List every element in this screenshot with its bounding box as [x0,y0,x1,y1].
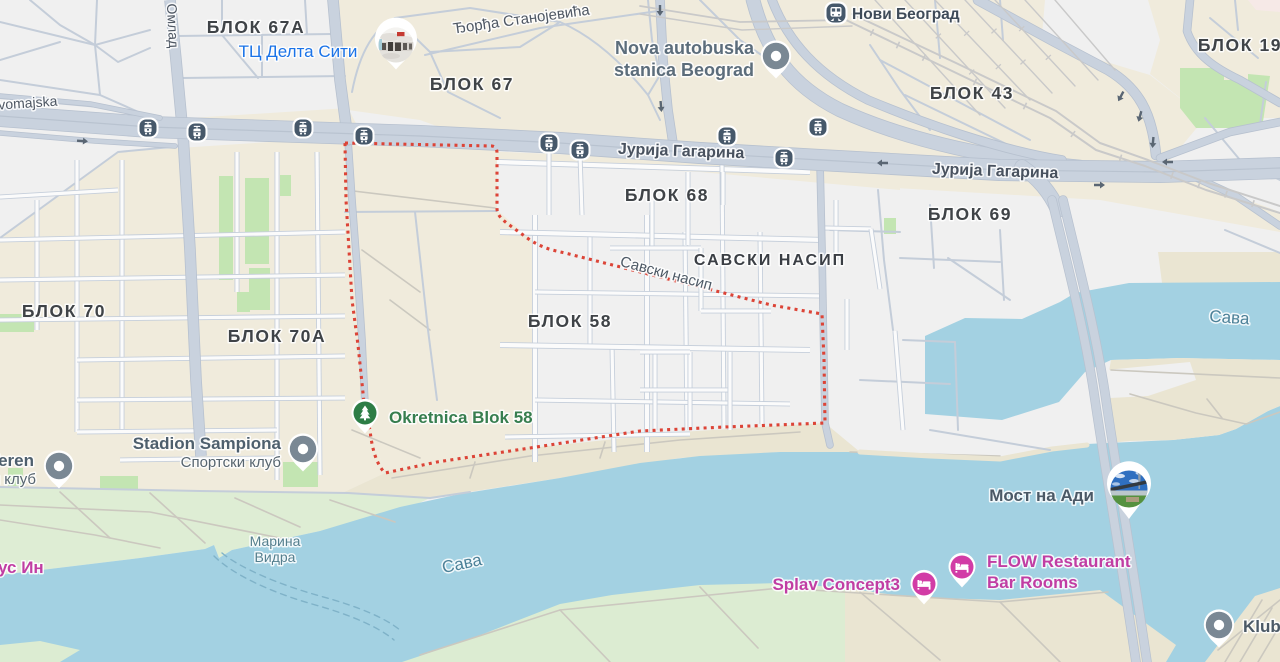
svg-text:Омлад: Омлад [164,3,182,48]
svg-text:Спортски клуб: Спортски клуб [181,454,281,471]
svg-text:Nova autobuska: Nova autobuska [615,38,755,58]
svg-text:БЛОК 69: БЛОК 69 [928,204,1012,224]
svg-text:Видра: Видра [255,549,296,565]
svg-text:БЛОК 19: БЛОК 19 [1198,35,1280,55]
svg-text:Марина: Марина [250,533,301,549]
svg-text:Okretnica Blok 58: Okretnica Blok 58 [389,408,533,427]
svg-text:БЛОК 70: БЛОК 70 [22,301,106,321]
svg-text:и клуб: и клуб [0,471,36,488]
svg-text:FLOW Restaurant: FLOW Restaurant [987,552,1131,571]
svg-text:Splav Concept3: Splav Concept3 [772,575,900,594]
svg-text:ТЦ Делта Сити: ТЦ Делта Сити [239,42,358,61]
svg-text:БЛОК 68: БЛОК 68 [625,185,709,205]
svg-text:Сава: Сава [1209,307,1251,329]
svg-text:БЛОК 67: БЛОК 67 [430,74,514,94]
svg-text:Stadion Sampiona: Stadion Sampiona [133,434,282,453]
svg-text:БЛОК 58: БЛОК 58 [528,311,612,331]
svg-text:БЛОК 67А: БЛОК 67А [207,17,305,37]
svg-text:Bar Rooms: Bar Rooms [987,573,1078,592]
svg-text:САВСКИ НАСИП: САВСКИ НАСИП [694,252,846,269]
svg-text:БЛОК 43: БЛОК 43 [930,83,1014,103]
svg-text:Klub: Klub [1243,617,1280,636]
svg-text:Teren: Teren [0,451,34,470]
svg-text:Мост на Ади: Мост на Ади [989,486,1094,505]
svg-text:Нови Београд: Нови Београд [852,6,960,23]
svg-text:ус Ин: ус Ин [0,558,44,577]
svg-text:БЛОК 70А: БЛОК 70А [228,326,326,346]
svg-text:stanica Beograd: stanica Beograd [614,60,754,80]
